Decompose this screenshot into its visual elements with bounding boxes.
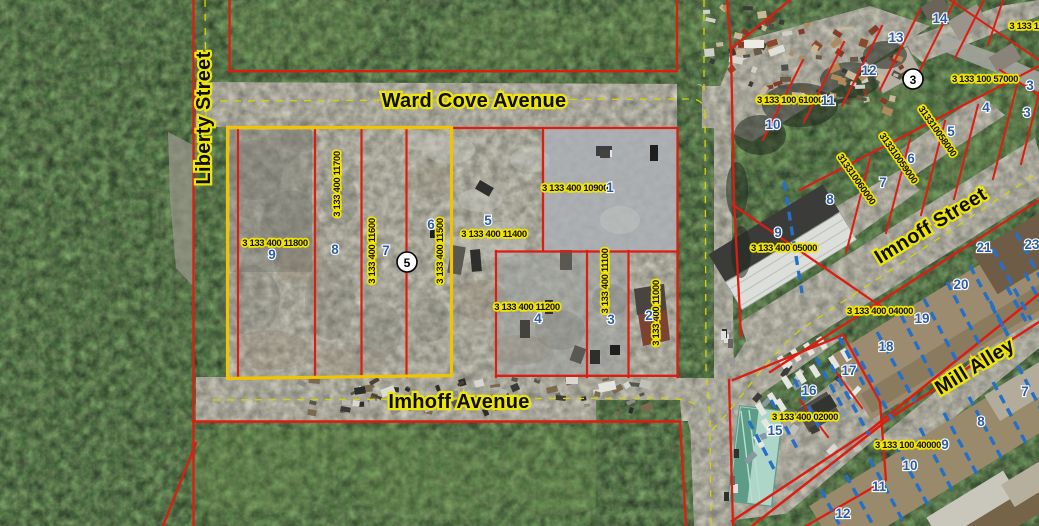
svg-text:8: 8 <box>826 192 834 207</box>
svg-text:20: 20 <box>953 277 968 292</box>
svg-text:3: 3 <box>1023 105 1031 120</box>
svg-text:1: 1 <box>606 180 614 195</box>
svg-text:4: 4 <box>982 100 990 115</box>
svg-text:3 133 400 11200: 3 133 400 11200 <box>494 302 560 313</box>
svg-text:2: 2 <box>645 308 653 323</box>
svg-text:10: 10 <box>902 458 917 473</box>
svg-text:Liberty Street: Liberty Street <box>193 51 215 184</box>
svg-text:11: 11 <box>821 93 836 108</box>
svg-text:3 133 100 61000: 3 133 100 61000 <box>757 95 823 106</box>
svg-text:4: 4 <box>534 311 542 326</box>
svg-text:3 133 400 11600: 3 133 400 11600 <box>367 218 378 284</box>
svg-text:9: 9 <box>941 437 949 452</box>
svg-text:5: 5 <box>947 124 955 139</box>
svg-text:17: 17 <box>841 363 856 378</box>
svg-text:6: 6 <box>427 217 435 232</box>
svg-text:5: 5 <box>404 256 411 270</box>
svg-text:7: 7 <box>1021 384 1029 399</box>
svg-text:15: 15 <box>767 423 783 438</box>
svg-text:8: 8 <box>331 242 339 257</box>
svg-text:3 133 100 40000: 3 133 100 40000 <box>875 440 941 451</box>
svg-text:9: 9 <box>268 247 276 262</box>
svg-text:11: 11 <box>872 479 887 494</box>
svg-text:12: 12 <box>835 506 850 521</box>
svg-text:3 133 400 10900: 3 133 400 10900 <box>542 183 608 194</box>
svg-text:9: 9 <box>774 225 782 240</box>
svg-text:3 133 400 05000: 3 133 400 05000 <box>751 243 817 254</box>
svg-text:19: 19 <box>914 311 929 326</box>
svg-text:Imhoff Avenue: Imhoff Avenue <box>388 391 529 413</box>
svg-text:10: 10 <box>765 117 780 132</box>
svg-text:23: 23 <box>1024 237 1039 252</box>
svg-text:Ward Cove Avenue: Ward Cove Avenue <box>382 90 567 112</box>
svg-text:6: 6 <box>907 151 915 166</box>
svg-text:14: 14 <box>932 11 948 26</box>
svg-text:13: 13 <box>888 30 904 45</box>
svg-text:3 133 1: 3 133 1 <box>1009 21 1039 32</box>
svg-text:3: 3 <box>910 73 917 87</box>
svg-text:21: 21 <box>976 240 992 255</box>
svg-text:16: 16 <box>801 383 817 398</box>
svg-text:7: 7 <box>879 175 887 190</box>
svg-text:3 133 400 11100: 3 133 400 11100 <box>600 248 611 313</box>
svg-text:3 133 400 02000: 3 133 400 02000 <box>772 412 838 423</box>
svg-text:3 133 100 57000: 3 133 100 57000 <box>952 74 1018 85</box>
svg-text:12: 12 <box>861 63 876 78</box>
svg-text:3 133 400 11700: 3 133 400 11700 <box>332 151 343 217</box>
svg-text:7: 7 <box>382 243 390 258</box>
svg-text:5: 5 <box>484 213 492 228</box>
svg-text:3 133 400 11500: 3 133 400 11500 <box>435 218 446 284</box>
svg-text:3: 3 <box>607 312 615 327</box>
svg-text:3 133 400 11400: 3 133 400 11400 <box>461 229 527 240</box>
svg-text:18: 18 <box>878 339 894 354</box>
svg-text:3: 3 <box>1026 78 1034 93</box>
svg-text:8: 8 <box>977 414 985 429</box>
svg-text:3 133 400 04000: 3 133 400 04000 <box>847 306 913 317</box>
